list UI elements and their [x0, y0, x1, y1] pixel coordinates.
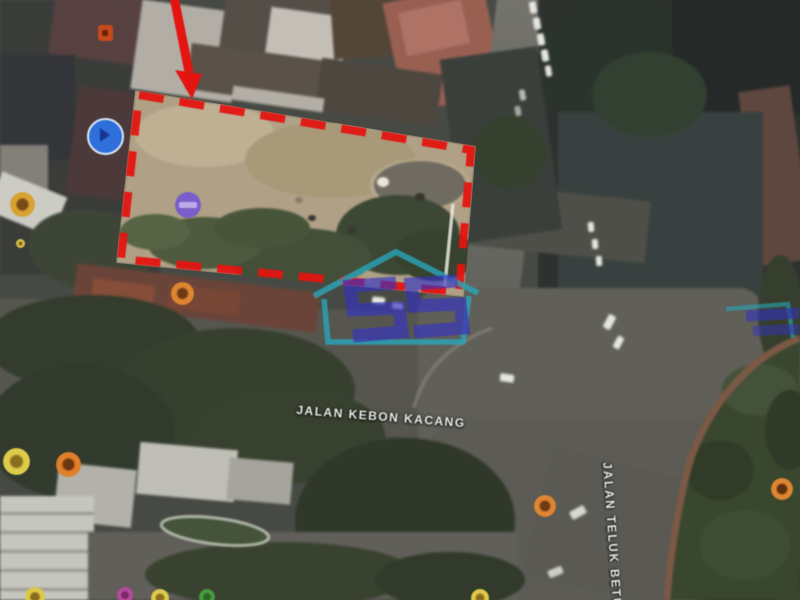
bar-glyph — [179, 202, 197, 207]
yellow-edge-marker-1[interactable] — [25, 587, 45, 600]
arrow-glyph — [100, 128, 117, 142]
purple-transit-marker[interactable] — [175, 192, 201, 218]
poi-markers-layer — [0, 0, 800, 600]
amber-poi-marker[interactable] — [10, 192, 35, 217]
map-canvas[interactable]: JALAN KEBON KACANG JALAN TELUK BETUNG — [0, 0, 800, 600]
blue-direction-marker[interactable] — [87, 118, 124, 155]
marker-glyph — [102, 30, 108, 36]
yellow-edge-marker-2[interactable] — [151, 589, 169, 600]
red-square-marker[interactable] — [98, 25, 113, 41]
orange-poi-marker-3[interactable] — [534, 495, 556, 517]
yellow-edge-marker-3[interactable] — [471, 589, 489, 600]
orange-poi-marker-4[interactable] — [771, 478, 793, 500]
yellow-poi-marker[interactable] — [3, 448, 30, 475]
yellow-speck-marker[interactable] — [16, 239, 25, 248]
orange-poi-marker-2[interactable] — [56, 452, 81, 477]
orange-poi-marker-1[interactable] — [171, 282, 194, 305]
green-edge-marker[interactable] — [199, 589, 215, 600]
magenta-edge-marker[interactable] — [117, 587, 133, 600]
